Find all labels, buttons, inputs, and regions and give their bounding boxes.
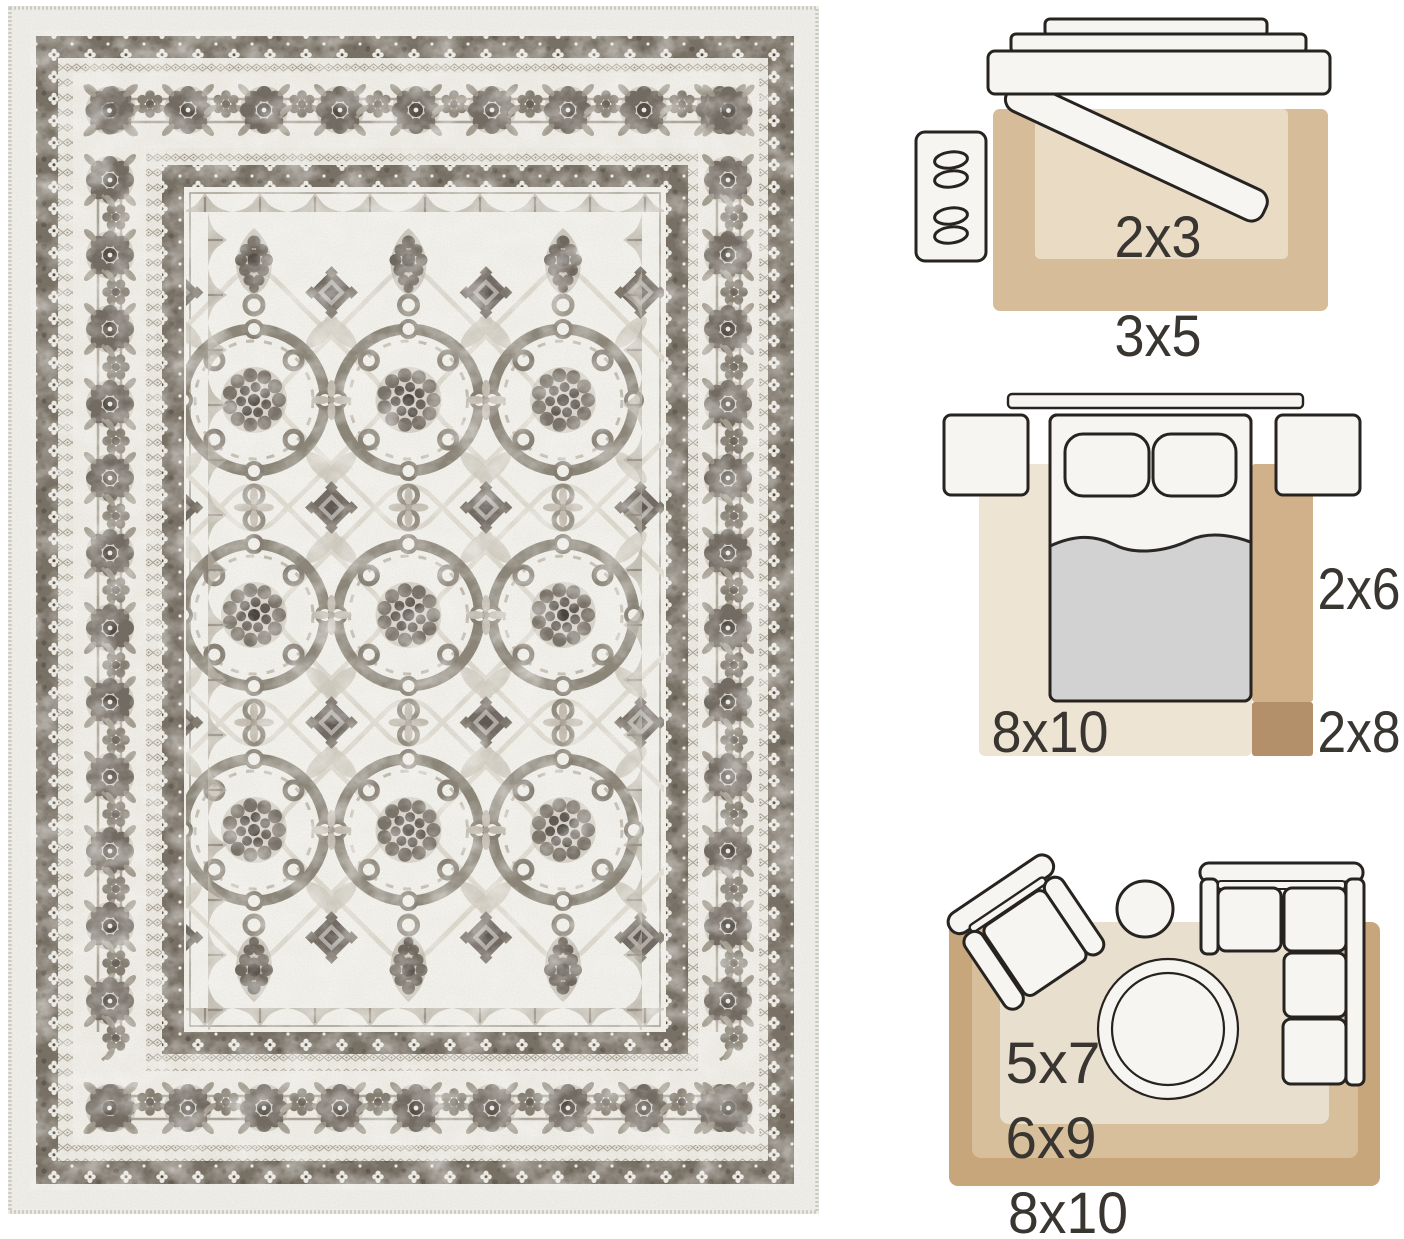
- svg-text:2x8: 2x8: [1318, 700, 1401, 765]
- svg-text:3x5: 3x5: [1115, 304, 1202, 369]
- svg-text:8x10: 8x10: [992, 700, 1109, 765]
- svg-text:2x6: 2x6: [1318, 557, 1401, 622]
- svg-text:5x7: 5x7: [1006, 1031, 1101, 1096]
- svg-text:6x9: 6x9: [1006, 1106, 1097, 1171]
- svg-text:2x3: 2x3: [1115, 205, 1202, 270]
- svg-text:8x10: 8x10: [1008, 1181, 1128, 1234]
